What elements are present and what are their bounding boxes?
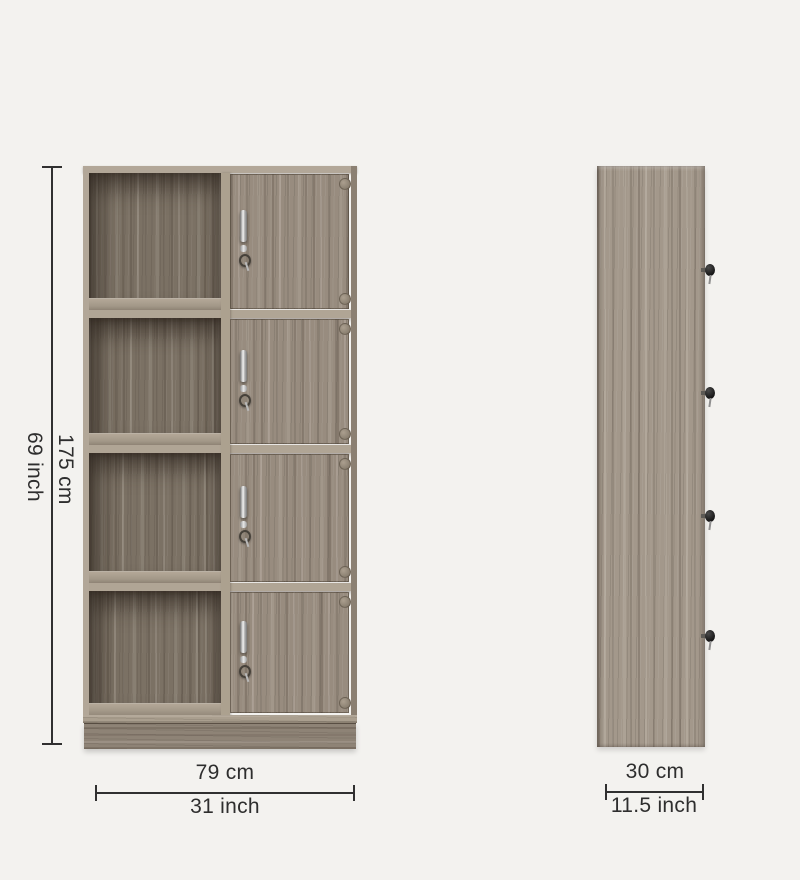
door-handle bbox=[240, 350, 247, 382]
cabinet-bottom-shelf bbox=[83, 715, 357, 723]
hinge-icon bbox=[339, 178, 351, 190]
cabinet-front-view bbox=[83, 166, 357, 748]
key-icon bbox=[701, 506, 717, 530]
hinge-icon bbox=[339, 428, 351, 440]
cabinet-right-edge bbox=[351, 166, 357, 723]
depth-label-cm: 30 cm bbox=[626, 761, 685, 782]
shelf-divider bbox=[89, 310, 351, 318]
door-fitting bbox=[240, 486, 252, 550]
open-compartment-1 bbox=[89, 173, 221, 310]
hinge-icon bbox=[339, 697, 351, 709]
key-tail bbox=[708, 275, 711, 284]
shelf-surface bbox=[89, 703, 221, 715]
width-label-inch: 31 inch bbox=[190, 796, 260, 817]
height-dimension-line bbox=[51, 166, 53, 745]
key-icon bbox=[701, 626, 717, 650]
height-label-inch: 69 inch bbox=[24, 432, 45, 502]
shelf-divider bbox=[89, 583, 351, 591]
door-fitting bbox=[240, 621, 252, 685]
door-handle bbox=[240, 486, 247, 518]
key-tail bbox=[708, 641, 711, 650]
lock-barrel bbox=[240, 385, 247, 392]
key-icon bbox=[701, 260, 717, 284]
key-tail bbox=[708, 521, 711, 530]
open-compartment-4 bbox=[89, 591, 221, 715]
door-fitting bbox=[240, 210, 252, 274]
door-handle bbox=[240, 210, 247, 242]
hinge-icon bbox=[339, 596, 351, 608]
cabinet-plinth bbox=[84, 723, 356, 749]
open-compartment-3 bbox=[89, 453, 221, 583]
width-label-cm: 79 cm bbox=[196, 762, 255, 783]
center-divider bbox=[221, 173, 230, 723]
hinge-icon bbox=[339, 458, 351, 470]
lock-barrel bbox=[240, 245, 247, 252]
shelf-surface bbox=[89, 433, 221, 445]
lock-barrel bbox=[240, 656, 247, 663]
locker-door-2 bbox=[230, 319, 349, 444]
shelf-surface bbox=[89, 571, 221, 583]
cabinet-top-edge bbox=[83, 166, 357, 173]
door-fitting bbox=[240, 350, 252, 414]
key-icon bbox=[701, 383, 717, 407]
open-compartment-2 bbox=[89, 318, 221, 445]
lock-barrel bbox=[240, 521, 247, 528]
cabinet-side-view bbox=[597, 166, 705, 747]
hinge-icon bbox=[339, 566, 351, 578]
locker-door-1 bbox=[230, 174, 349, 309]
locker-door-3 bbox=[230, 454, 349, 582]
product-dimension-diagram: 175 cm 69 inch bbox=[0, 0, 800, 880]
width-dimension-line bbox=[95, 792, 355, 794]
depth-dimension-line bbox=[605, 791, 704, 793]
shelf-surface bbox=[89, 298, 221, 310]
hinge-icon bbox=[339, 293, 351, 305]
shelf-divider bbox=[89, 445, 351, 453]
key-tail bbox=[708, 398, 711, 407]
locker-door-4 bbox=[230, 592, 349, 713]
hinge-icon bbox=[339, 323, 351, 335]
door-handle bbox=[240, 621, 247, 653]
cabinet-left-edge bbox=[83, 166, 89, 723]
depth-label-inch: 11.5 inch bbox=[611, 795, 697, 816]
height-label-cm: 175 cm bbox=[55, 434, 76, 505]
